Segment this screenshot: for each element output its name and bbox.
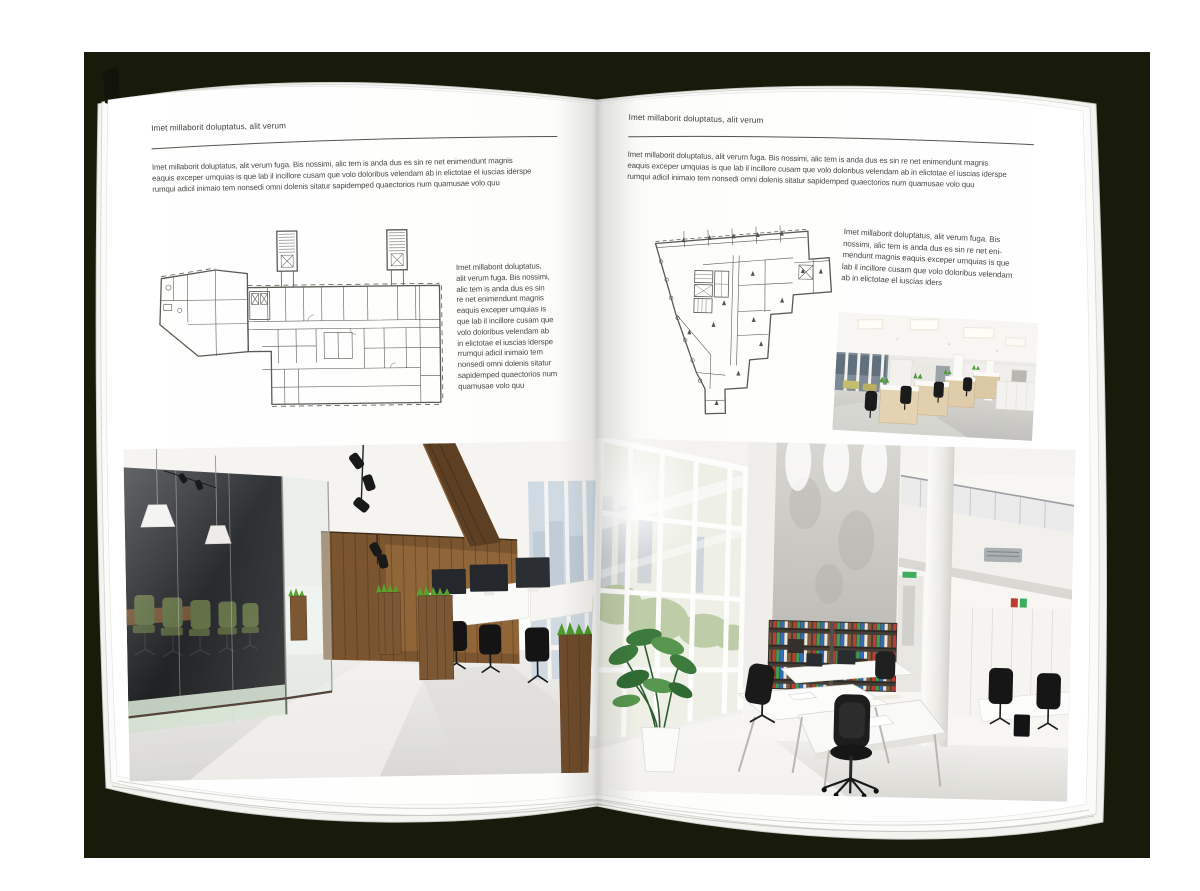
left-header-rule <box>151 134 557 152</box>
right-page: Imet millaborit doluptatus, alit verum I… <box>580 100 1089 817</box>
right-plan-caption: Imet millaborit doluptatus, alit verum f… <box>841 226 1052 295</box>
right-header-rule <box>628 131 1034 151</box>
right-small-office-photo <box>832 312 1038 441</box>
magazine-mockup-canvas: { "book": { "left_page": { "header": "Im… <box>0 0 1200 891</box>
right-floor-plan <box>639 213 842 428</box>
wall-sign <box>1020 598 1027 607</box>
sofa <box>843 380 859 389</box>
interior-walls <box>159 267 441 405</box>
left-intro-paragraph: Imet millaborit doluptatus, alit verum f… <box>152 153 593 195</box>
right-office-photo <box>588 438 1075 802</box>
right-intro-paragraph: Imet millaborit doluptatus, alit verum f… <box>627 149 1068 193</box>
exit-sign <box>902 572 916 578</box>
plan-fixtures <box>163 282 395 370</box>
left-floor-plan <box>157 227 452 416</box>
right-page-header: Imet millaborit doluptatus, alit verum <box>628 113 1048 132</box>
wall-sign <box>1011 598 1018 607</box>
left-page: Imet millaborit doluptatus, alit verum I… <box>107 95 609 804</box>
sofa <box>863 383 877 391</box>
interior-walls <box>654 223 830 404</box>
left-page-header: Imet millaborit doluptatus, alit verum <box>151 116 571 133</box>
door-markers <box>678 228 824 407</box>
left-office-photo <box>123 440 603 781</box>
meeting-room <box>123 446 332 734</box>
waste-bin <box>1014 714 1031 736</box>
cabinet-block <box>996 381 1036 411</box>
facade-columns <box>656 260 705 383</box>
concrete-wall <box>772 438 901 623</box>
plant-pot <box>641 727 680 772</box>
left-plan-caption: Imet millaborit doluptatus, alit verum f… <box>456 261 580 393</box>
